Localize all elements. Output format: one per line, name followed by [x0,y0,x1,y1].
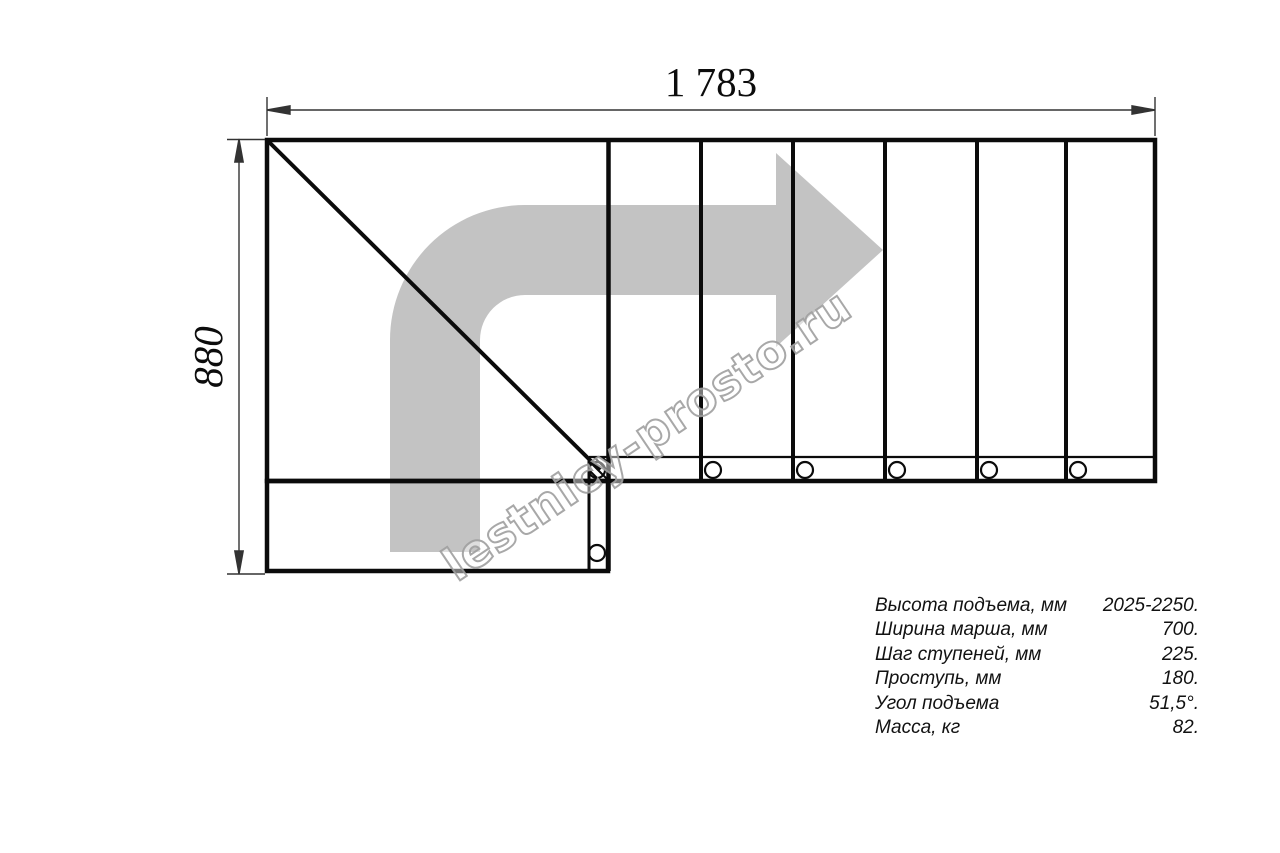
spec-row: Масса, кг 82. [875,716,1199,740]
dimension-arrowhead [235,139,243,162]
spec-label: Ширина марша, мм [875,618,1048,642]
spec-row: Шаг ступеней, мм 225. [875,643,1199,667]
spec-value: 51,5°. [1149,692,1199,716]
spec-label: Шаг ступеней, мм [875,643,1041,667]
mount-hole [797,462,813,478]
dimension-width-label: 1 783 [665,58,757,106]
spec-label: Масса, кг [875,716,960,740]
spec-table: Высота подъема, мм 2025-2250. Ширина мар… [875,594,1199,740]
spec-value: 180. [1162,667,1199,691]
spec-row: Угол подъема 51,5°. [875,692,1199,716]
spec-row: Высота подъема, мм 2025-2250. [875,594,1199,618]
mount-hole [981,462,997,478]
mount-hole [705,462,721,478]
spec-value: 2025-2250. [1103,594,1199,618]
dimension-arrowhead [267,106,290,114]
staircase-drawing-page: 1 783 880 lestnicy-prosto.ru Высота подъ… [0,0,1280,853]
dimension-height-label: 880 [184,326,232,388]
tread-dividers [609,140,1067,571]
mount-hole [889,462,905,478]
spec-label: Проступь, мм [875,667,1001,691]
spec-value: 82. [1173,716,1199,740]
spec-row: Ширина марша, мм 700. [875,618,1199,642]
dimension-arrowhead [1132,106,1155,114]
spec-row: Проступь, мм 180. [875,667,1199,691]
spec-label: Угол подъема [875,692,999,716]
mount-hole [589,545,605,561]
mount-hole [1070,462,1086,478]
dimension-arrowhead [235,551,243,574]
dimension-height [227,139,265,574]
spec-label: Высота подъема, мм [875,594,1067,618]
spec-value: 700. [1162,618,1199,642]
spec-value: 225. [1162,643,1199,667]
mount-holes [589,462,1086,561]
stringer-and-newel [589,457,1153,571]
